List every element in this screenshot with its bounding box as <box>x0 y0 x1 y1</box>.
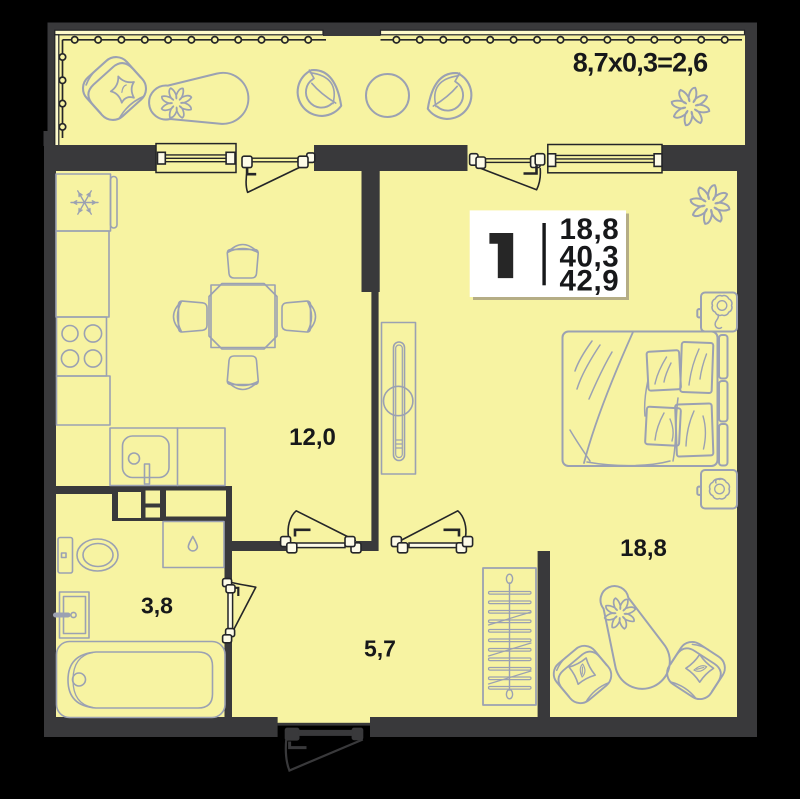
svg-text:8,7x0,3=2,6: 8,7x0,3=2,6 <box>573 48 708 78</box>
svg-text:18,8: 18,8 <box>620 535 667 562</box>
svg-text:3,8: 3,8 <box>141 593 173 619</box>
svg-text:5,7: 5,7 <box>364 636 396 662</box>
svg-text:12,0: 12,0 <box>289 424 336 451</box>
svg-text:42,9: 42,9 <box>560 265 620 298</box>
